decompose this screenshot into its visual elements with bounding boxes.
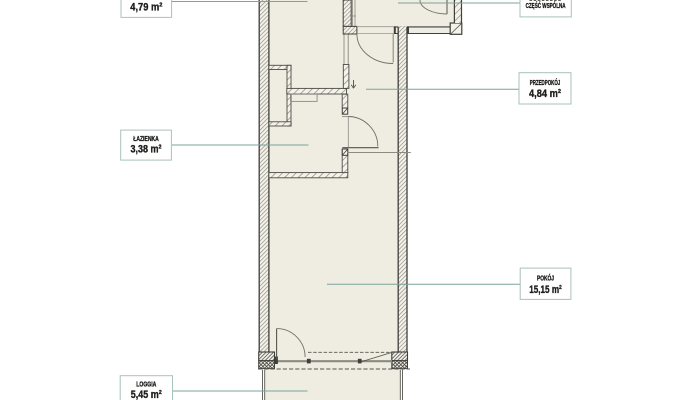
svg-text:CZĘŚĆ WSPÓLNA: CZĘŚĆ WSPÓLNA bbox=[526, 1, 566, 10]
svg-text:ŁAZIENKA: ŁAZIENKA bbox=[133, 135, 159, 143]
svg-text:4,79 m²: 4,79 m² bbox=[130, 1, 162, 13]
svg-text:5,45 m²: 5,45 m² bbox=[131, 389, 162, 400]
svg-text:PRZEDPOKÓJ: PRZEDPOKÓJ bbox=[530, 78, 561, 87]
svg-text:3,38 m²: 3,38 m² bbox=[131, 144, 162, 156]
svg-text:15,15 m²: 15,15 m² bbox=[529, 284, 562, 296]
svg-text:4,84 m²: 4,84 m² bbox=[529, 88, 561, 100]
svg-text:POKÓJ: POKÓJ bbox=[537, 274, 554, 283]
svg-text:LOGGIA: LOGGIA bbox=[136, 380, 156, 388]
